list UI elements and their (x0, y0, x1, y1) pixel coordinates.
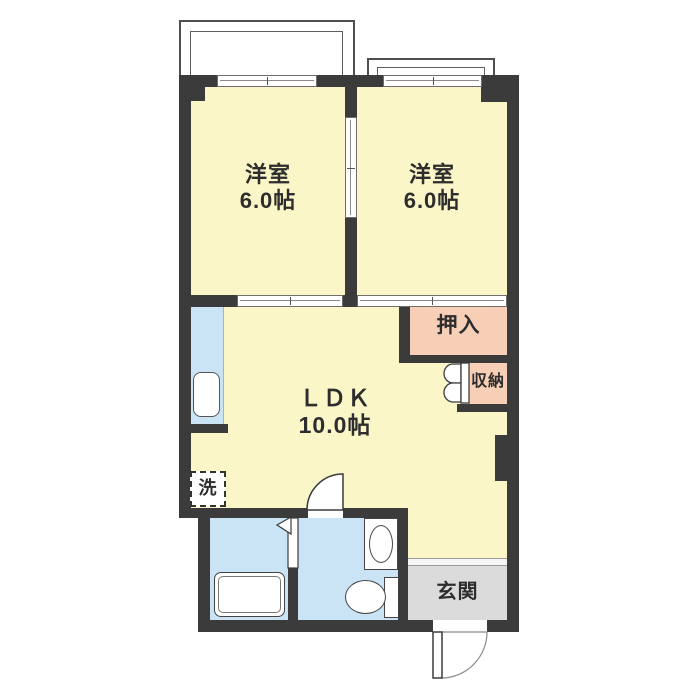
wall-right (507, 75, 519, 632)
wall-corner-top-left (179, 75, 205, 101)
balcony-left-inner-rail (190, 31, 343, 75)
wash-basin-bowl (369, 525, 393, 563)
fusuma-bedroom-2-oshiire (357, 295, 507, 307)
room-ldk-hall (408, 508, 507, 558)
ldk-label: ＬＤＫ 10.0帖 (260, 384, 410, 440)
oshiire-label: 押入 (410, 313, 507, 339)
bathtub (214, 572, 285, 617)
wall-oshiire-storage (399, 355, 519, 363)
bedroom-1-label: 洋室 6.0帖 (193, 158, 343, 218)
wall-corner-top-right (481, 75, 519, 102)
sliding-window-bedroom-2 (383, 75, 482, 87)
toilet-bowl (345, 580, 386, 614)
sliding-door-between-bedrooms (345, 117, 357, 218)
washing-machine-space: 洗 (190, 471, 226, 507)
entrance-step-edge (408, 558, 507, 566)
laundry-label: 洗 (199, 478, 218, 499)
toilet-tank (384, 577, 399, 618)
kitchen-sink (193, 372, 220, 417)
wall-bottom-left (198, 508, 210, 632)
entrance-label: 玄関 (408, 580, 507, 606)
floor-plan: 洗 洋室 6.0帖 洋室 6.0帖 ＬＤＫ 10.0帖 押入 収納 (0, 0, 700, 700)
door-opening-washroom (308, 508, 343, 518)
wall-storage-south (457, 404, 519, 412)
storage-label: 収納 (466, 372, 510, 392)
wall-kitchen-stub (179, 424, 228, 433)
door-opening-entrance (433, 620, 487, 632)
sliding-window-bedroom-1 (217, 75, 317, 87)
entrance-door-swing-icon (441, 632, 487, 678)
wall-ldk-south (179, 508, 408, 518)
balcony-right-inner-rail (377, 67, 485, 75)
wash-basin-unit (364, 518, 398, 570)
wall-bath-washroom (288, 518, 298, 620)
wall-pillar-right (495, 435, 519, 481)
wall-washroom-entrance (398, 518, 408, 620)
entrance-door-leaf (433, 632, 442, 678)
sliding-door-bedroom-1-ldk (237, 295, 343, 307)
bedroom-2-label: 洋室 6.0帖 (357, 158, 507, 218)
